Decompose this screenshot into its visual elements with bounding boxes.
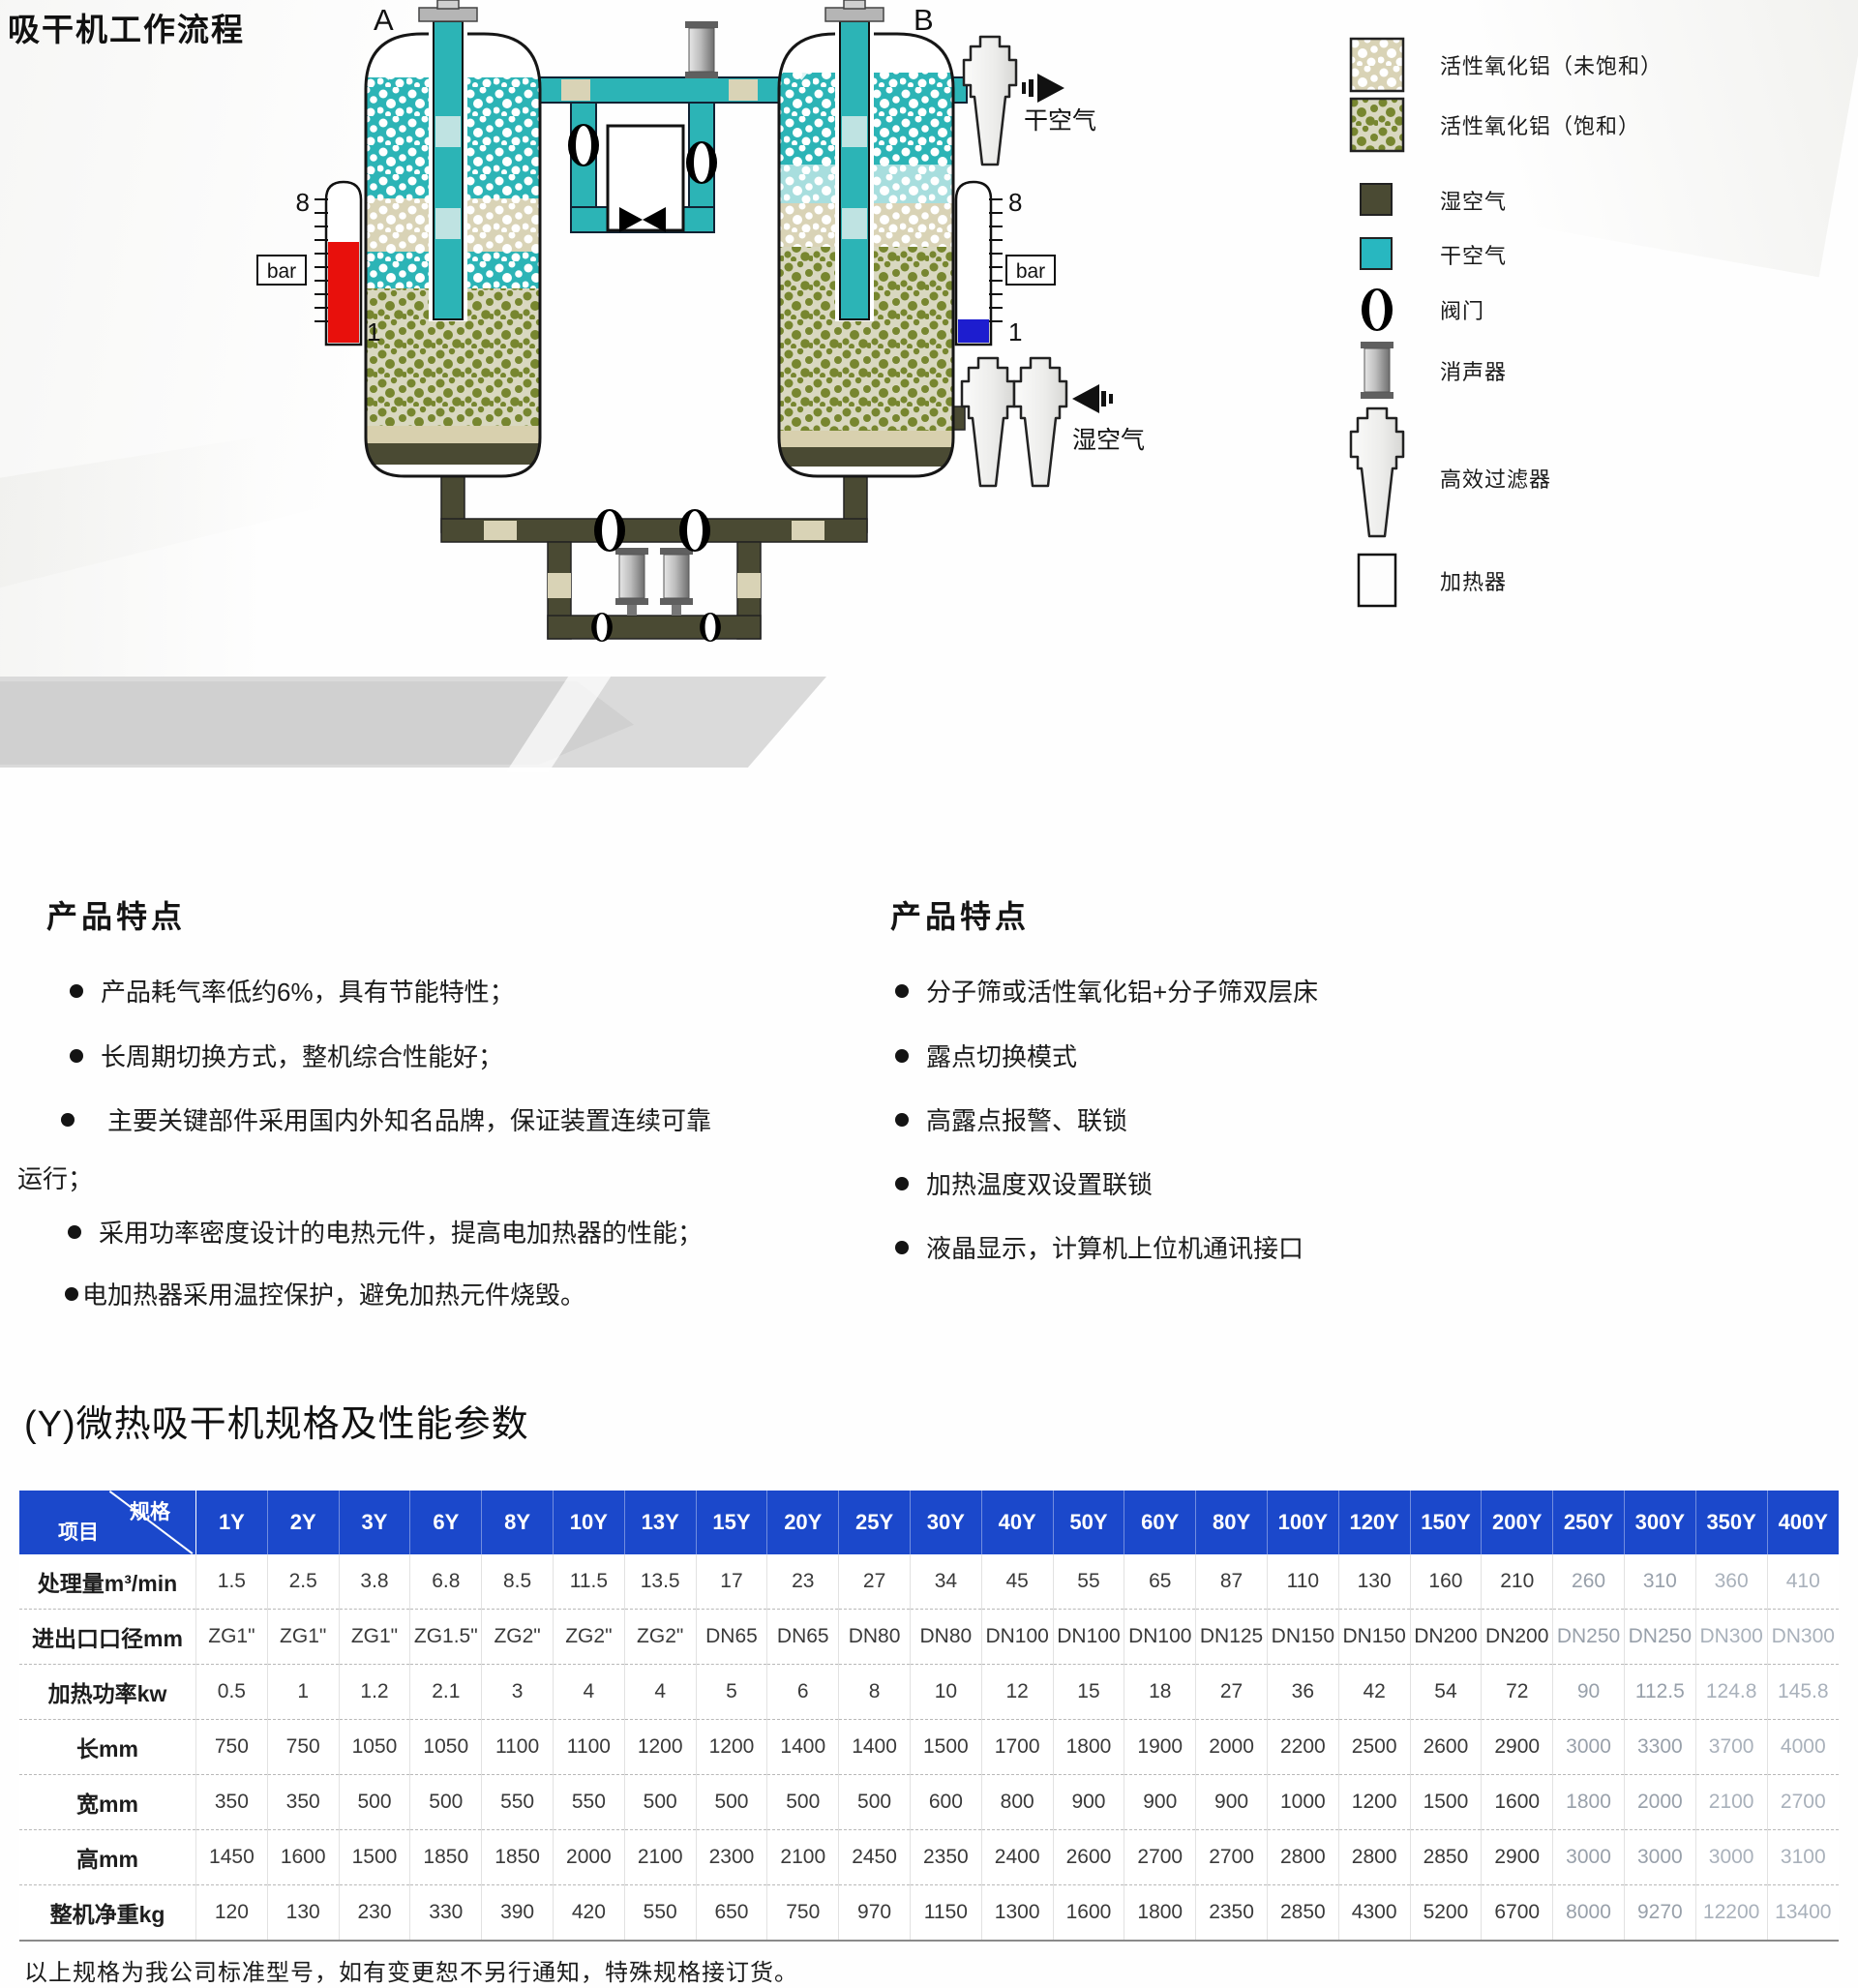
spec-cell: 900: [1196, 1775, 1268, 1830]
spec-cell: 3300: [1624, 1720, 1695, 1775]
spec-cell: 1400: [839, 1720, 911, 1775]
spec-cell: ZG1": [196, 1610, 268, 1665]
spec-cell: 4: [624, 1665, 696, 1720]
spec-header-row: 规格 项目 1Y2Y3Y6Y8Y10Y13Y15Y20Y25Y30Y40Y50Y…: [19, 1491, 1839, 1554]
spec-cell: ZG1.5": [410, 1610, 482, 1665]
muffler-stem: [672, 605, 681, 616]
spec-cell: 2900: [1482, 1830, 1553, 1885]
spec-cell: 4300: [1338, 1885, 1410, 1942]
spec-column-header: 120Y: [1338, 1491, 1410, 1554]
legend-item-label: 加热器: [1440, 565, 1507, 596]
spec-cell: 2300: [696, 1830, 767, 1885]
spec-cell: 1500: [339, 1830, 410, 1885]
spec-row-label: 整机净重kg: [19, 1885, 196, 1942]
spec-cell: 210: [1482, 1554, 1553, 1610]
spec-cell: 750: [267, 1720, 339, 1775]
bullet-icon: [61, 1113, 75, 1127]
spec-cell: 1450: [196, 1830, 268, 1885]
spec-cell: 1600: [1482, 1775, 1553, 1830]
spec-cell: DN125: [1196, 1610, 1268, 1665]
spec-cell: 2.1: [410, 1665, 482, 1720]
spec-row-label: 处理量m³/min: [19, 1554, 196, 1610]
spec-cell: 6: [767, 1665, 839, 1720]
spec-cell: DN300: [1767, 1610, 1839, 1665]
spec-cell: 1000: [1267, 1775, 1338, 1830]
spec-row: 加热功率kw0.511.22.1344568101215182736425472…: [19, 1665, 1839, 1720]
spec-cell: 6.8: [410, 1554, 482, 1610]
feature-item: 加热温度双设置联锁: [895, 1165, 1153, 1201]
features-left-heading: 产品特点: [46, 892, 186, 937]
gauge-max-label: 8: [1008, 188, 1022, 217]
spec-cell: 2800: [1338, 1830, 1410, 1885]
spec-cell: 1700: [981, 1720, 1053, 1775]
spec-cell: 3700: [1695, 1720, 1767, 1775]
gauge-unit-label: bar: [267, 260, 296, 283]
spec-cell: 42: [1338, 1665, 1410, 1720]
spec-cell: 130: [1338, 1554, 1410, 1610]
spec-cell: 360: [1695, 1554, 1767, 1610]
spec-cell: 390: [482, 1885, 554, 1942]
spec-cell: DN65: [767, 1610, 839, 1665]
spec-section-title: (Y)微热吸干机规格及性能参数: [24, 1394, 529, 1447]
spec-cell: 550: [624, 1885, 696, 1942]
spec-cell: 1: [267, 1665, 339, 1720]
spec-cell: 112.5: [1624, 1665, 1695, 1720]
spec-row-label: 宽mm: [19, 1775, 196, 1830]
wet-air-label: 湿空气: [1072, 427, 1145, 454]
legend-item: 高效过滤器: [1340, 407, 1551, 540]
spec-column-header: 60Y: [1124, 1491, 1196, 1554]
spec-row: 整机净重kg1201302303303904205506507509701150…: [19, 1885, 1839, 1942]
spec-cell: 3000: [1553, 1830, 1625, 1885]
spec-cell: 0.5: [196, 1665, 268, 1720]
spec-cell: 9270: [1624, 1885, 1695, 1942]
spec-cell: 500: [410, 1775, 482, 1830]
spec-cell: 5: [696, 1665, 767, 1720]
spec-cell: ZG2": [482, 1610, 554, 1665]
spec-cell: DN200: [1410, 1610, 1482, 1665]
spec-cell: 420: [553, 1885, 624, 1942]
spec-cell: ZG1": [267, 1610, 339, 1665]
tower-a-label: A: [374, 3, 394, 37]
spec-cell: 550: [482, 1775, 554, 1830]
spec-cell: 1400: [767, 1720, 839, 1775]
tower-b-label: B: [914, 3, 934, 37]
feature-item: 产品耗气率低约6%，具有节能特性；: [70, 973, 515, 1009]
spec-row: 处理量m³/min1.52.53.86.88.511.513.517232734…: [19, 1554, 1839, 1610]
legend-item-label: 阀门: [1440, 294, 1484, 325]
spec-cell: DN80: [910, 1610, 981, 1665]
spec-cell: 36: [1267, 1665, 1338, 1720]
heater-icon: [608, 126, 683, 230]
spec-cell: 1200: [696, 1720, 767, 1775]
spec-cell: 800: [981, 1775, 1053, 1830]
spec-cell: 1900: [1124, 1720, 1196, 1775]
spec-cell: 4000: [1767, 1720, 1839, 1775]
spec-cell: 145.8: [1767, 1665, 1839, 1720]
spec-cell: 15: [1053, 1665, 1124, 1720]
legend-item: 加热器: [1340, 552, 1507, 610]
spec-cell: 54: [1410, 1665, 1482, 1720]
spec-row: 进出口口径mmZG1"ZG1"ZG1"ZG1.5"ZG2"ZG2"ZG2"DN6…: [19, 1610, 1839, 1665]
legend-item: 湿空气: [1340, 182, 1507, 219]
pressure-gauge-left: 8 1 bar: [257, 182, 380, 346]
muffler-icon: [615, 548, 648, 605]
legend-item-label: 活性氧化铝（饱和）: [1440, 109, 1640, 140]
filter-icon: [1340, 407, 1413, 540]
spec-cell: DN100: [1053, 1610, 1124, 1665]
spec-column-header: 200Y: [1482, 1491, 1553, 1554]
spec-row-label: 长mm: [19, 1720, 196, 1775]
spec-cell: 2850: [1267, 1885, 1338, 1942]
corner-item-label: 项目: [58, 1517, 99, 1546]
spec-column-header: 40Y: [981, 1491, 1053, 1554]
spec-cell: 1.5: [196, 1554, 268, 1610]
spec-cell: 970: [839, 1885, 911, 1942]
spec-cell: 600: [910, 1775, 981, 1830]
spec-cell: 900: [1124, 1775, 1196, 1830]
wet-air-swatch-icon: [1340, 182, 1413, 219]
spec-cell: 650: [696, 1885, 767, 1942]
spec-cell: 2000: [1196, 1720, 1268, 1775]
spec-cell: 55: [1053, 1554, 1124, 1610]
bullet-icon: [895, 1049, 909, 1063]
spec-cell: 2000: [553, 1830, 624, 1885]
valve-icon: [591, 613, 613, 642]
catalog-page: 吸干机工作流程: [0, 0, 1858, 1988]
spec-cell: 2100: [1695, 1775, 1767, 1830]
spec-row-label: 加热功率kw: [19, 1665, 196, 1720]
bullet-icon: [70, 1049, 83, 1063]
spec-cell: 500: [767, 1775, 839, 1830]
spec-cell: 750: [196, 1720, 268, 1775]
spec-cell: 10: [910, 1665, 981, 1720]
spec-cell: 27: [1196, 1665, 1268, 1720]
spec-cell: 2400: [981, 1830, 1053, 1885]
spec-cell: 8.5: [482, 1554, 554, 1610]
bullet-icon: [65, 1287, 78, 1301]
legend-item-label: 消声器: [1440, 355, 1507, 386]
spec-cell: 1800: [1553, 1775, 1625, 1830]
spec-cell: DN250: [1553, 1610, 1625, 1665]
spec-cell: 1500: [910, 1720, 981, 1775]
spec-column-header: 150Y: [1410, 1491, 1482, 1554]
spec-cell: 2450: [839, 1830, 911, 1885]
spec-cell: 110: [1267, 1554, 1338, 1610]
spec-column-header: 400Y: [1767, 1491, 1839, 1554]
valve-icon: [1340, 286, 1413, 333]
spec-cell: 160: [1410, 1554, 1482, 1610]
spec-column-header: 100Y: [1267, 1491, 1338, 1554]
gauge-max-label: 8: [296, 188, 310, 217]
legend-item: 活性氧化铝（饱和）: [1340, 97, 1640, 153]
spec-cell: 72: [1482, 1665, 1553, 1720]
dry-air-arrow-icon: [1022, 74, 1064, 103]
spec-cell: 500: [696, 1775, 767, 1830]
wet-air-arrow-icon: [1072, 384, 1113, 413]
spec-cell: 2900: [1482, 1720, 1553, 1775]
bullet-icon: [70, 984, 83, 998]
spec-cell: 1100: [553, 1720, 624, 1775]
spec-cell: 410: [1767, 1554, 1839, 1610]
spec-row-label: 高mm: [19, 1830, 196, 1885]
spec-cell: 18: [1124, 1665, 1196, 1720]
spec-cell: 27: [839, 1554, 911, 1610]
feature-item: 液晶显示，计算机上位机通讯接口: [895, 1229, 1304, 1265]
spec-column-header: 20Y: [767, 1491, 839, 1554]
spec-cell: DN100: [1124, 1610, 1196, 1665]
spec-cell: 1050: [339, 1720, 410, 1775]
spec-cell: 90: [1553, 1665, 1625, 1720]
spec-cell: ZG1": [339, 1610, 410, 1665]
spec-cell: 2.5: [267, 1554, 339, 1610]
dry-air-label: 干空气: [1024, 107, 1096, 135]
spec-cell: 8000: [1553, 1885, 1625, 1942]
feature-item: 电加热器采用温控保护，避免加热元件烧毁。: [65, 1276, 585, 1311]
spec-cell: 3000: [1624, 1830, 1695, 1885]
filter-icon: [1014, 358, 1066, 486]
spec-cell: 130: [267, 1885, 339, 1942]
spec-cell: 3.8: [339, 1554, 410, 1610]
spec-cell: 2100: [624, 1830, 696, 1885]
legend-item: 阀门: [1340, 286, 1484, 333]
spec-row: 高mm1450160015001850185020002100230021002…: [19, 1830, 1839, 1885]
spec-cell: 2500: [1338, 1720, 1410, 1775]
spec-cell: 1300: [981, 1885, 1053, 1942]
spec-cell: 900: [1053, 1775, 1124, 1830]
filter-icon: [964, 37, 1016, 165]
spec-column-header: 1Y: [196, 1491, 268, 1554]
spec-cell: 2800: [1267, 1830, 1338, 1885]
features-right-heading: 产品特点: [890, 892, 1030, 937]
spec-column-header: 50Y: [1053, 1491, 1124, 1554]
spec-column-header: 25Y: [839, 1491, 911, 1554]
spec-cell: 17: [696, 1554, 767, 1610]
spec-column-header: 13Y: [624, 1491, 696, 1554]
spec-cell: 45: [981, 1554, 1053, 1610]
spec-cell: 5200: [1410, 1885, 1482, 1942]
spec-cell: 87: [1196, 1554, 1268, 1610]
spec-cell: DN150: [1338, 1610, 1410, 1665]
muffler-icon: [1340, 341, 1413, 401]
spec-cell: 3000: [1553, 1720, 1625, 1775]
spec-column-header: 30Y: [910, 1491, 981, 1554]
feature-item: 主要关键部件采用国内外知名品牌，保证装置连续可靠: [61, 1101, 711, 1137]
spec-cell: 1600: [1053, 1885, 1124, 1942]
spec-cell: 1850: [482, 1830, 554, 1885]
spec-cell: 2600: [1053, 1830, 1124, 1885]
spec-cell: 2000: [1624, 1775, 1695, 1830]
spec-cell: 2100: [767, 1830, 839, 1885]
legend-item-label: 高效过滤器: [1440, 463, 1551, 494]
filter-icon: [962, 358, 1014, 486]
spec-cell: 750: [767, 1885, 839, 1942]
spec-cell: 3100: [1767, 1830, 1839, 1885]
spec-cell: 1050: [410, 1720, 482, 1775]
spec-column-header: 300Y: [1624, 1491, 1695, 1554]
muffler-stem: [627, 605, 637, 616]
spec-table: 规格 项目 1Y2Y3Y6Y8Y10Y13Y15Y20Y25Y30Y40Y50Y…: [19, 1491, 1839, 1942]
spec-cell: 500: [624, 1775, 696, 1830]
bullet-icon: [895, 1177, 909, 1190]
spec-cell: 230: [339, 1885, 410, 1942]
legend-item: 消声器: [1340, 341, 1507, 401]
spec-cell: DN80: [839, 1610, 911, 1665]
spec-cell: 8: [839, 1665, 911, 1720]
spec-cell: DN250: [1624, 1610, 1695, 1665]
spec-cell: 1800: [1124, 1885, 1196, 1942]
spec-column-header: 2Y: [267, 1491, 339, 1554]
legend-item-label: 干空气: [1440, 239, 1507, 270]
spec-column-header: 250Y: [1553, 1491, 1625, 1554]
spec-cell: 2700: [1196, 1830, 1268, 1885]
spec-row: 长mm7507501050105011001100120012001400140…: [19, 1720, 1839, 1775]
spec-cell: 350: [196, 1775, 268, 1830]
spec-cell: DN300: [1695, 1610, 1767, 1665]
spec-cell: 34: [910, 1554, 981, 1610]
spec-cell: 2350: [1196, 1885, 1268, 1942]
dry-air-swatch-icon: [1340, 236, 1413, 273]
spec-cell: 3: [482, 1665, 554, 1720]
spec-cell: 12: [981, 1665, 1053, 1720]
feature-item: 采用功率密度设计的电热元件，提高电加热器的性能；: [68, 1214, 703, 1250]
spec-cell: ZG2": [553, 1610, 624, 1665]
valve-icon: [568, 124, 599, 166]
spec-cell: 1100: [482, 1720, 554, 1775]
spec-cell: 11.5: [553, 1554, 624, 1610]
spec-cell: 65: [1124, 1554, 1196, 1610]
spec-cell: 1500: [1410, 1775, 1482, 1830]
feature-item: 分子筛或活性氧化铝+分子筛双层床: [895, 973, 1318, 1009]
spec-column-header: 3Y: [339, 1491, 410, 1554]
spec-cell: 260: [1553, 1554, 1625, 1610]
valve-icon: [686, 141, 717, 184]
spec-cell: 2700: [1124, 1830, 1196, 1885]
spec-column-header: 350Y: [1695, 1491, 1767, 1554]
spec-cell: 1600: [267, 1830, 339, 1885]
diagram-legend: 活性氧化铝（未饱和） 活性氧化铝（饱和） 湿空气 干空气 阀门: [1340, 29, 1853, 648]
spec-column-header: 8Y: [482, 1491, 554, 1554]
muffler-icon: [685, 21, 718, 78]
spec-cell: 2600: [1410, 1720, 1482, 1775]
spec-cell: 1200: [1338, 1775, 1410, 1830]
bullet-icon: [895, 1241, 909, 1254]
valve-icon: [594, 509, 625, 552]
spec-cell: 1850: [410, 1830, 482, 1885]
spec-cell: 350: [267, 1775, 339, 1830]
spec-cell: 120: [196, 1885, 268, 1942]
spec-column-header: 6Y: [410, 1491, 482, 1554]
muffler-icon: [660, 548, 693, 605]
gauge-min-label: 1: [1008, 317, 1022, 346]
feature-item: 长周期切换方式，整机综合性能好；: [70, 1038, 503, 1073]
spec-cell: 6700: [1482, 1885, 1553, 1942]
legend-item-label: 湿空气: [1440, 185, 1507, 216]
valve-icon: [700, 613, 721, 642]
heater-icon: [1340, 552, 1413, 610]
spec-cell: 13400: [1767, 1885, 1839, 1942]
spec-cell: 1200: [624, 1720, 696, 1775]
spec-row-label: 进出口口径mm: [19, 1610, 196, 1665]
legend-item: 活性氧化铝（未饱和）: [1340, 37, 1663, 93]
feature-item: 高露点报警、联锁: [895, 1101, 1127, 1137]
valve-icon: [679, 509, 710, 552]
spec-cell: 2850: [1410, 1830, 1482, 1885]
process-flow-diagram: 8 1 bar 8 1 bar: [0, 0, 1210, 668]
spec-cell: 330: [410, 1885, 482, 1942]
spec-column-header: 10Y: [553, 1491, 624, 1554]
bullet-icon: [68, 1225, 81, 1239]
alumina-unsaturated-swatch-icon: [1340, 37, 1413, 93]
alumina-saturated-swatch-icon: [1340, 97, 1413, 153]
feature-item: 露点切换模式: [895, 1038, 1077, 1073]
spec-column-header: 80Y: [1196, 1491, 1268, 1554]
spec-cell: 2200: [1267, 1720, 1338, 1775]
spec-cell: 310: [1624, 1554, 1695, 1610]
spec-cell: 124.8: [1695, 1665, 1767, 1720]
bullet-icon: [895, 984, 909, 998]
spec-cell: ZG2": [624, 1610, 696, 1665]
bullet-icon: [895, 1113, 909, 1127]
spec-cell: 12200: [1695, 1885, 1767, 1942]
spec-row: 宽mm3503505005005505505005005005006008009…: [19, 1775, 1839, 1830]
gauge-unit-label: bar: [1016, 260, 1045, 283]
spec-cell: DN150: [1267, 1610, 1338, 1665]
spec-corner-cell: 规格 项目: [19, 1491, 196, 1554]
spec-cell: 23: [767, 1554, 839, 1610]
spec-cell: DN200: [1482, 1610, 1553, 1665]
gauge-min-label: 1: [367, 317, 380, 346]
spec-cell: 3000: [1695, 1830, 1767, 1885]
footnote: 以上规格为我公司标准型号，如有变更恕不另行通知，特殊规格接订货。: [24, 1953, 798, 1987]
pressure-gauge-right: 8 1 bar: [956, 182, 1055, 346]
spec-cell: DN100: [981, 1610, 1053, 1665]
legend-item: 干空气: [1340, 236, 1507, 273]
spec-cell: 1800: [1053, 1720, 1124, 1775]
spec-cell: 13.5: [624, 1554, 696, 1610]
spec-cell: 1150: [910, 1885, 981, 1942]
spec-cell: 500: [839, 1775, 911, 1830]
spec-cell: 1.2: [339, 1665, 410, 1720]
spec-cell: 500: [339, 1775, 410, 1830]
spec-cell: DN65: [696, 1610, 767, 1665]
spec-column-header: 15Y: [696, 1491, 767, 1554]
spec-cell: 550: [553, 1775, 624, 1830]
feature-item-continuation: 运行；: [17, 1160, 93, 1195]
legend-item-label: 活性氧化铝（未饱和）: [1440, 49, 1663, 80]
spec-cell: 2700: [1767, 1775, 1839, 1830]
spec-cell: 4: [553, 1665, 624, 1720]
spec-cell: 2350: [910, 1830, 981, 1885]
